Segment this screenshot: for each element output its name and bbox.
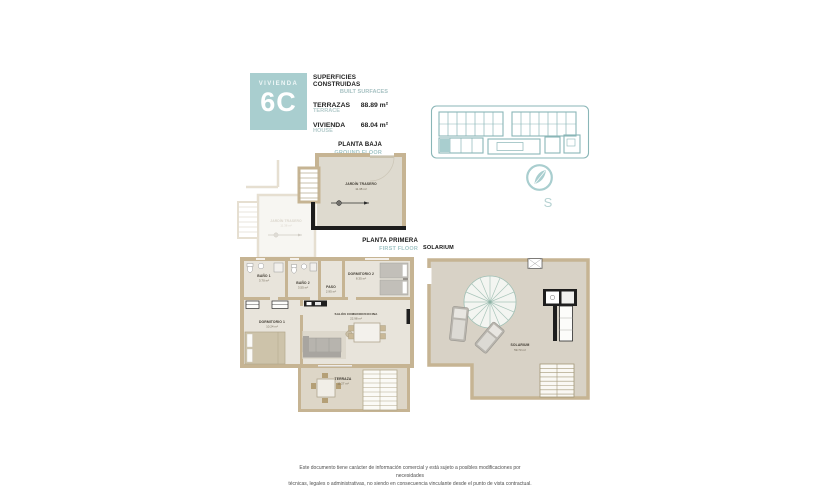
room-area: 2.95 m² xyxy=(326,290,336,294)
room-label: BAÑO 1 xyxy=(257,273,270,278)
surfaces-title: SUPERFICIES CONSTRUIDAS xyxy=(313,74,388,88)
stairs-icon xyxy=(363,370,397,410)
site-boundary xyxy=(432,106,589,158)
shower-tray-icon xyxy=(528,259,542,269)
surface-row-house: VIVIENDA HOUSE 68.04 m² xyxy=(313,122,388,135)
surface-row-terrace: TERRAZAS TERRACE 88.89 m² xyxy=(313,102,388,115)
kitchen-counter-icon xyxy=(304,301,327,307)
garden-floor xyxy=(317,155,404,228)
unit-first-floor: BAÑO 1 3.70 m² BAÑO 2 3.55 m² PASO 2.95 … xyxy=(240,257,414,412)
unit-badge: VIVIENDA 6C xyxy=(250,73,307,130)
party-wall xyxy=(311,202,315,230)
plan-title-en: FIRST FLOOR xyxy=(318,246,418,253)
party-wall xyxy=(311,226,406,230)
surface-value: 88.89 m² xyxy=(361,102,388,109)
room-area: 8.35 m² xyxy=(356,277,366,281)
south-label: S xyxy=(544,195,553,210)
room-area: 11.38 m² xyxy=(280,224,292,228)
wall-opening xyxy=(426,268,432,284)
tv-unit-icon xyxy=(407,309,411,324)
first-floor-title: PLANTA PRIMERA FIRST FLOOR xyxy=(318,238,418,253)
room-area: 3.70 m² xyxy=(259,279,269,283)
room-area: 11.27 m² xyxy=(337,382,349,386)
room-label: DORMITORIO 1 xyxy=(259,320,285,324)
room-area: 3.55 m² xyxy=(298,286,308,290)
cabinet-icon xyxy=(560,306,573,341)
unit-solarium: SOLARIUM 59.73 m² xyxy=(426,259,589,399)
disclaimer-line-1: Este documento tiene carácter de informa… xyxy=(287,465,533,481)
stairs-icon xyxy=(540,364,574,397)
room-area: 22.98 m² xyxy=(350,317,362,321)
surface-name-en: HOUSE xyxy=(313,129,345,135)
bed-icon xyxy=(245,332,285,364)
room-label: BAÑO 2 xyxy=(296,280,309,285)
compass-icon: S xyxy=(524,161,564,211)
plan-title-es: PLANTA PRIMERA xyxy=(318,238,418,246)
room-label: SALÓN COMEDOR/COCINA xyxy=(335,311,379,316)
unit-number: 6C xyxy=(250,89,307,116)
surface-value: 68.04 m² xyxy=(361,122,388,129)
dining-table-icon xyxy=(349,323,386,342)
site-key-plan xyxy=(428,100,592,164)
room-area: 59.73 m² xyxy=(514,348,526,352)
disclaimer-line-2: técnicas, legales o administrativas, no … xyxy=(287,481,533,489)
room-label: DORMITORIO 2 xyxy=(348,272,374,276)
room-label: TERRAZA xyxy=(335,377,352,381)
highlighted-unit-marker xyxy=(440,139,450,152)
solarium-plan: SOLARIUM 59.73 m² xyxy=(420,250,598,412)
surfaces-table: SUPERFICIES CONSTRUIDAS BUILT SURFACES T… xyxy=(313,74,388,135)
room-label: PASO xyxy=(326,285,336,289)
floorplan-sheet: VIVIENDA 6C SUPERFICIES CONSTRUIDAS BUIL… xyxy=(0,0,819,492)
room-area: 11.38 m² xyxy=(355,187,367,191)
first-floor-plan: BAÑO 1 3.70 m² BAÑO 2 3.55 m² PASO 2.95 … xyxy=(230,253,420,423)
wall-stub xyxy=(553,306,557,341)
footer-disclaimer: Este documento tiene carácter de informa… xyxy=(287,465,533,488)
sun-lounger-icon xyxy=(449,306,468,341)
parasol-icon xyxy=(464,276,516,328)
surfaces-subtitle: BUILT SURFACES xyxy=(313,89,388,95)
room-area: 10.24 m² xyxy=(266,325,278,329)
surface-name-en: TERRACE xyxy=(313,109,350,115)
room-label: JARDÍN TRASERO xyxy=(270,218,302,223)
kitchen-counter-icon xyxy=(543,289,577,306)
room-label: JARDÍN TRASERO xyxy=(345,181,377,186)
room-label: SOLARIUM xyxy=(511,343,530,347)
sofa-icon xyxy=(303,336,341,358)
